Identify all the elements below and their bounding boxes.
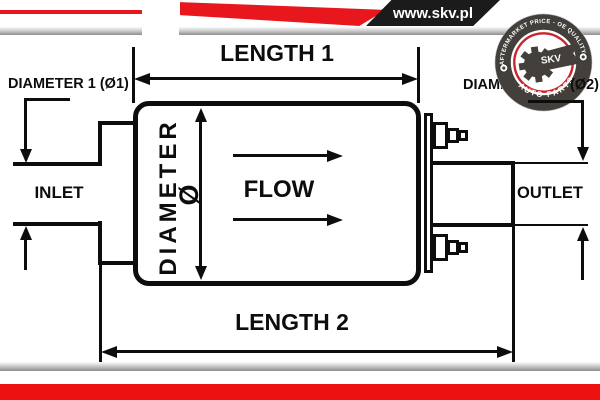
diameter2-line-upper [581, 100, 584, 147]
outlet-tube-top-edge [433, 161, 515, 165]
diameter2-label-suffix: (Ø2) [570, 77, 599, 93]
diameter2-arrowhead-down [577, 147, 589, 161]
diameter2-line-lower [581, 241, 584, 280]
outlet-extension-top [515, 162, 588, 164]
diameter-dimension-line [199, 122, 202, 266]
inlet-tube-bottom-edge [13, 222, 100, 226]
length2-arrowhead-right [497, 346, 513, 358]
footer-gray-bar [0, 362, 600, 371]
neck-left-upper-edge [98, 121, 102, 166]
outlet-tube-bottom-edge [433, 223, 515, 227]
diameter1-arrowhead-down [20, 149, 32, 163]
diameter1-leader [24, 98, 70, 101]
end-plate [424, 113, 433, 273]
flow-arrow-top-line [233, 154, 329, 157]
length1-arrowhead-right [402, 73, 418, 85]
length2-extension-right [512, 227, 515, 364]
outlet-extension-bottom [515, 224, 588, 226]
neck-top-edge [100, 121, 136, 125]
length1-dimension-line [148, 77, 404, 80]
fuel-pump-dimension-diagram: www.skv.pl [0, 0, 600, 400]
footer-red-band [0, 384, 600, 400]
website-url: www.skv.pl [393, 5, 473, 22]
length2-arrowhead-left [101, 346, 117, 358]
inlet-label: INLET [24, 183, 94, 203]
header-black-banner: www.skv.pl [366, 0, 500, 26]
skv-stamp-badge: SKV AFTERMARKET PRICE - OE QUALITY AUTO … [494, 13, 593, 112]
flow-label: FLOW [227, 176, 331, 204]
inlet-tube-top-edge [13, 162, 100, 166]
neck-left-lower-edge [98, 221, 102, 265]
terminal-top-block [433, 122, 448, 149]
diameter-arrowhead-up [195, 108, 207, 122]
flow-arrowhead-bottom [327, 214, 343, 226]
length1-arrowhead-left [134, 73, 150, 85]
outlet-label: OUTLET [514, 184, 586, 203]
terminal-bottom-block [433, 234, 448, 261]
diameter-arrowhead-down [195, 266, 207, 280]
header-gap [142, 0, 179, 38]
header-red-stripe [0, 10, 142, 14]
neck-bottom-edge [100, 261, 136, 265]
length2-label: LENGTH 2 [192, 309, 392, 336]
diameter1-line-upper [24, 98, 27, 149]
diameter2-leader [528, 100, 584, 103]
flow-arrow-bottom-line [233, 218, 329, 221]
terminal-top-tip [458, 130, 468, 141]
terminal-bottom-tip [458, 242, 468, 253]
diameter1-arrowhead-up [20, 226, 32, 240]
diameter2-arrowhead-up [577, 227, 589, 241]
length2-dimension-line [117, 350, 497, 353]
length1-label: LENGTH 1 [177, 40, 377, 67]
diameter1-line-lower [24, 240, 27, 270]
diameter1-label: DIAMETER 1 (Ø1) [8, 76, 129, 92]
flow-arrowhead-top [327, 150, 343, 162]
header-red-swoosh [180, 0, 386, 26]
